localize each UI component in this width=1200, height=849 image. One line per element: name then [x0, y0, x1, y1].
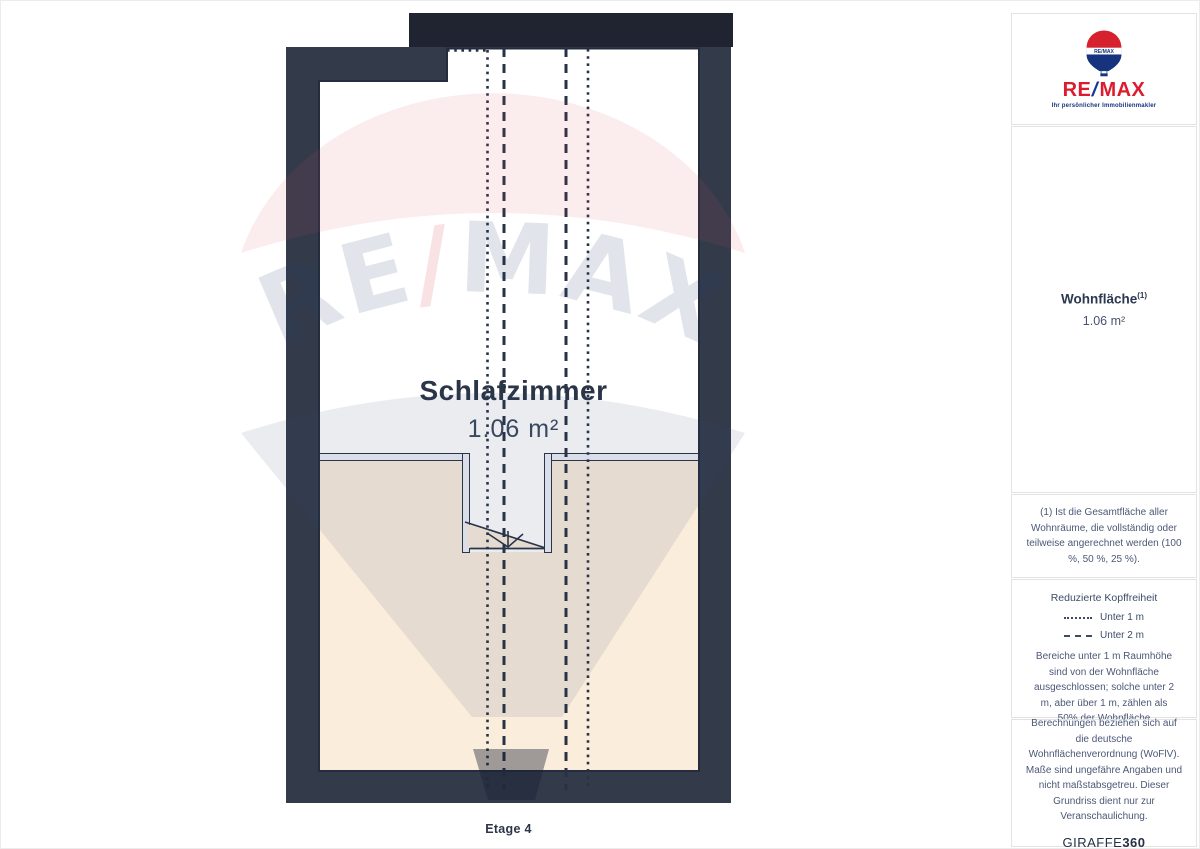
headroom-legend-card: Reduzierte Kopffreiheit Unter 1 m Unter … [1011, 579, 1197, 718]
footnote-card: (1) Ist die Gesamtfläche aller Wohnräume… [1011, 494, 1197, 578]
stairwell-wall-left [462, 453, 470, 553]
floor-plan: Schlafzimmer 1.06 m² Etage 4 RE/MAX [1, 1, 1011, 849]
dashed-line-sample [1064, 635, 1092, 637]
living-area-title: Wohnfläche(1) [1061, 291, 1147, 307]
excluded-area-left [319, 461, 470, 771]
legend-note: Bereiche unter 1 m Raumhöhe sind von der… [1020, 649, 1188, 727]
knee-wall-left [319, 453, 463, 461]
dotted-line-sample [1064, 617, 1092, 619]
floorplan-page: Schlafzimmer 1.06 m² Etage 4 RE/MAX RE/M… [0, 0, 1200, 849]
legend-item-under-1m: Unter 1 m [1020, 612, 1188, 623]
disclaimer-card: Berechnungen beziehen sich auf die deuts… [1011, 719, 1197, 847]
excluded-area-right [544, 461, 699, 771]
legend-item-under-2m: Unter 2 m [1020, 630, 1188, 641]
remax-wordmark: RE/MAX [1063, 79, 1146, 102]
excluded-area-below-stairs [470, 552, 544, 771]
room-name-label: Schlafzimmer [376, 375, 651, 407]
stairwell-wall-right [544, 453, 552, 553]
living-area-value: 1.06 m² [1083, 314, 1125, 328]
disclaimer-text: Berechnungen beziehen sich auf die deuts… [1012, 716, 1196, 825]
remax-logo-card: RE/MAX RE/MAX Ihr persönlicher Immobilie… [1011, 13, 1197, 125]
svg-text:RE/MAX: RE/MAX [1094, 49, 1114, 55]
legend-title: Reduzierte Kopffreiheit [1020, 592, 1188, 604]
footnote-text: (1) Ist die Gesamtfläche aller Wohnräume… [1012, 505, 1196, 567]
upper-floor-block [409, 13, 733, 47]
knee-wall-right [551, 453, 699, 461]
floor-level-label: Etage 4 [286, 822, 731, 836]
remax-balloon-icon: RE/MAX [1083, 29, 1125, 77]
living-area-card: Wohnfläche(1) 1.06 m² [1011, 126, 1197, 493]
giraffe360-logo: GIRAFFE360 [1062, 835, 1145, 849]
remax-tagline: Ihr persönlicher Immobilienmakler [1052, 103, 1157, 109]
room-area-label: 1.06 m² [376, 415, 651, 444]
footnote-marker: (1) [1137, 291, 1147, 300]
